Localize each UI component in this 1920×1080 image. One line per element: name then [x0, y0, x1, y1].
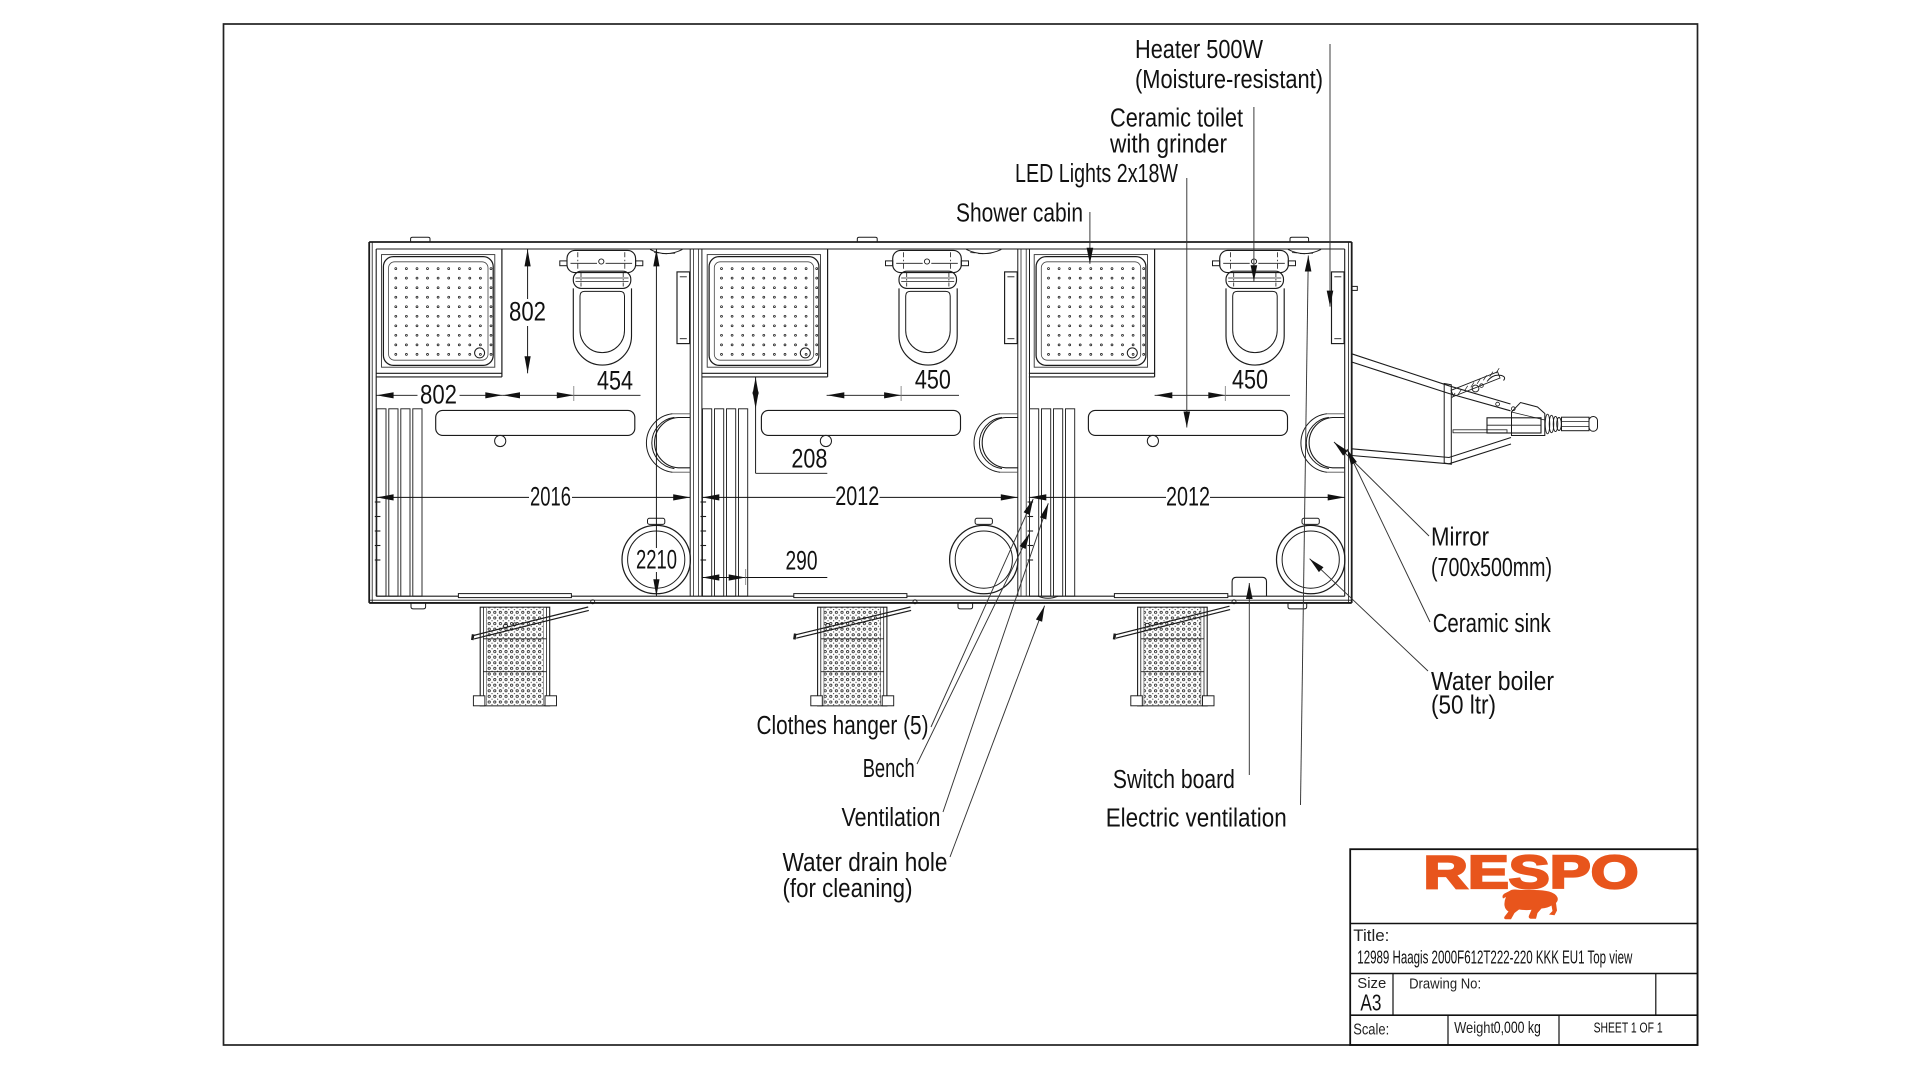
svg-text:2012: 2012 [1166, 482, 1210, 512]
svg-text:12989 Haagis 2000F612T222-220: 12989 Haagis 2000F612T222-220 KKK EU1 To… [1357, 947, 1632, 968]
svg-text:Bench: Bench [863, 755, 915, 783]
svg-text:Ventilation: Ventilation [842, 804, 941, 832]
svg-text:0,000 kg: 0,000 kg [1494, 1018, 1541, 1037]
svg-text:2210: 2210 [636, 545, 677, 575]
svg-text:208: 208 [791, 444, 827, 474]
svg-text:454: 454 [597, 366, 633, 396]
svg-text:A3: A3 [1360, 990, 1381, 1016]
svg-text:LED Lights 2x18W: LED Lights 2x18W [1015, 160, 1178, 188]
svg-text:Scale:: Scale: [1353, 1022, 1389, 1039]
svg-text:802: 802 [509, 297, 546, 327]
svg-text:SHEET 1 OF 1: SHEET 1 OF 1 [1594, 1021, 1663, 1037]
svg-text:802: 802 [420, 380, 457, 410]
svg-text:2012: 2012 [835, 481, 879, 511]
svg-text:Electric ventilation: Electric ventilation [1106, 805, 1287, 833]
svg-text:Mirror: Mirror [1431, 524, 1489, 552]
svg-text:Water drain hole: Water drain hole [783, 849, 948, 877]
svg-text:Clothes hanger (5): Clothes hanger (5) [757, 712, 929, 740]
svg-text:Weight: Weight [1454, 1020, 1494, 1037]
svg-text:Ceramic sink: Ceramic sink [1433, 610, 1551, 638]
svg-text:450: 450 [1232, 365, 1268, 395]
svg-text:with grinder: with grinder [1109, 131, 1227, 159]
svg-text:Heater 500W: Heater 500W [1135, 36, 1263, 64]
svg-text:Shower cabin: Shower cabin [956, 200, 1083, 228]
svg-text:(for cleaning): (for cleaning) [783, 875, 913, 903]
svg-text:Ceramic toilet: Ceramic toilet [1110, 105, 1243, 133]
svg-text:(700x500mm): (700x500mm) [1431, 554, 1552, 582]
svg-text:2016: 2016 [530, 481, 571, 511]
svg-text:Title:: Title: [1353, 926, 1389, 945]
svg-text:450: 450 [915, 365, 951, 395]
svg-text:Switch board: Switch board [1113, 766, 1235, 794]
svg-text:Drawing No:: Drawing No: [1409, 976, 1481, 993]
svg-text:(Moisture-resistant): (Moisture-resistant) [1135, 66, 1323, 94]
svg-text:(50 ltr): (50 ltr) [1431, 692, 1496, 720]
svg-text:290: 290 [786, 546, 818, 576]
